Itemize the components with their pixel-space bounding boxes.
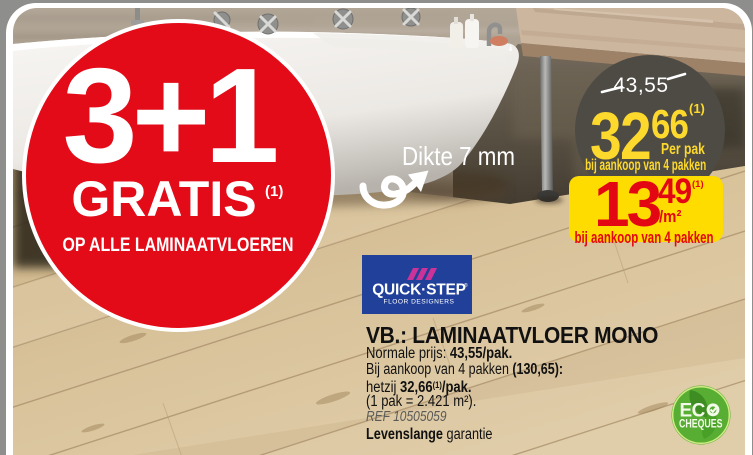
svg-text:CHEQUES: CHEQUES [679,417,723,431]
svg-text:FLOOR DESIGNERS: FLOOR DESIGNERS [384,299,455,306]
svg-text:QUICK·STEP: QUICK·STEP [372,282,466,299]
svg-text:®: ® [464,282,468,289]
